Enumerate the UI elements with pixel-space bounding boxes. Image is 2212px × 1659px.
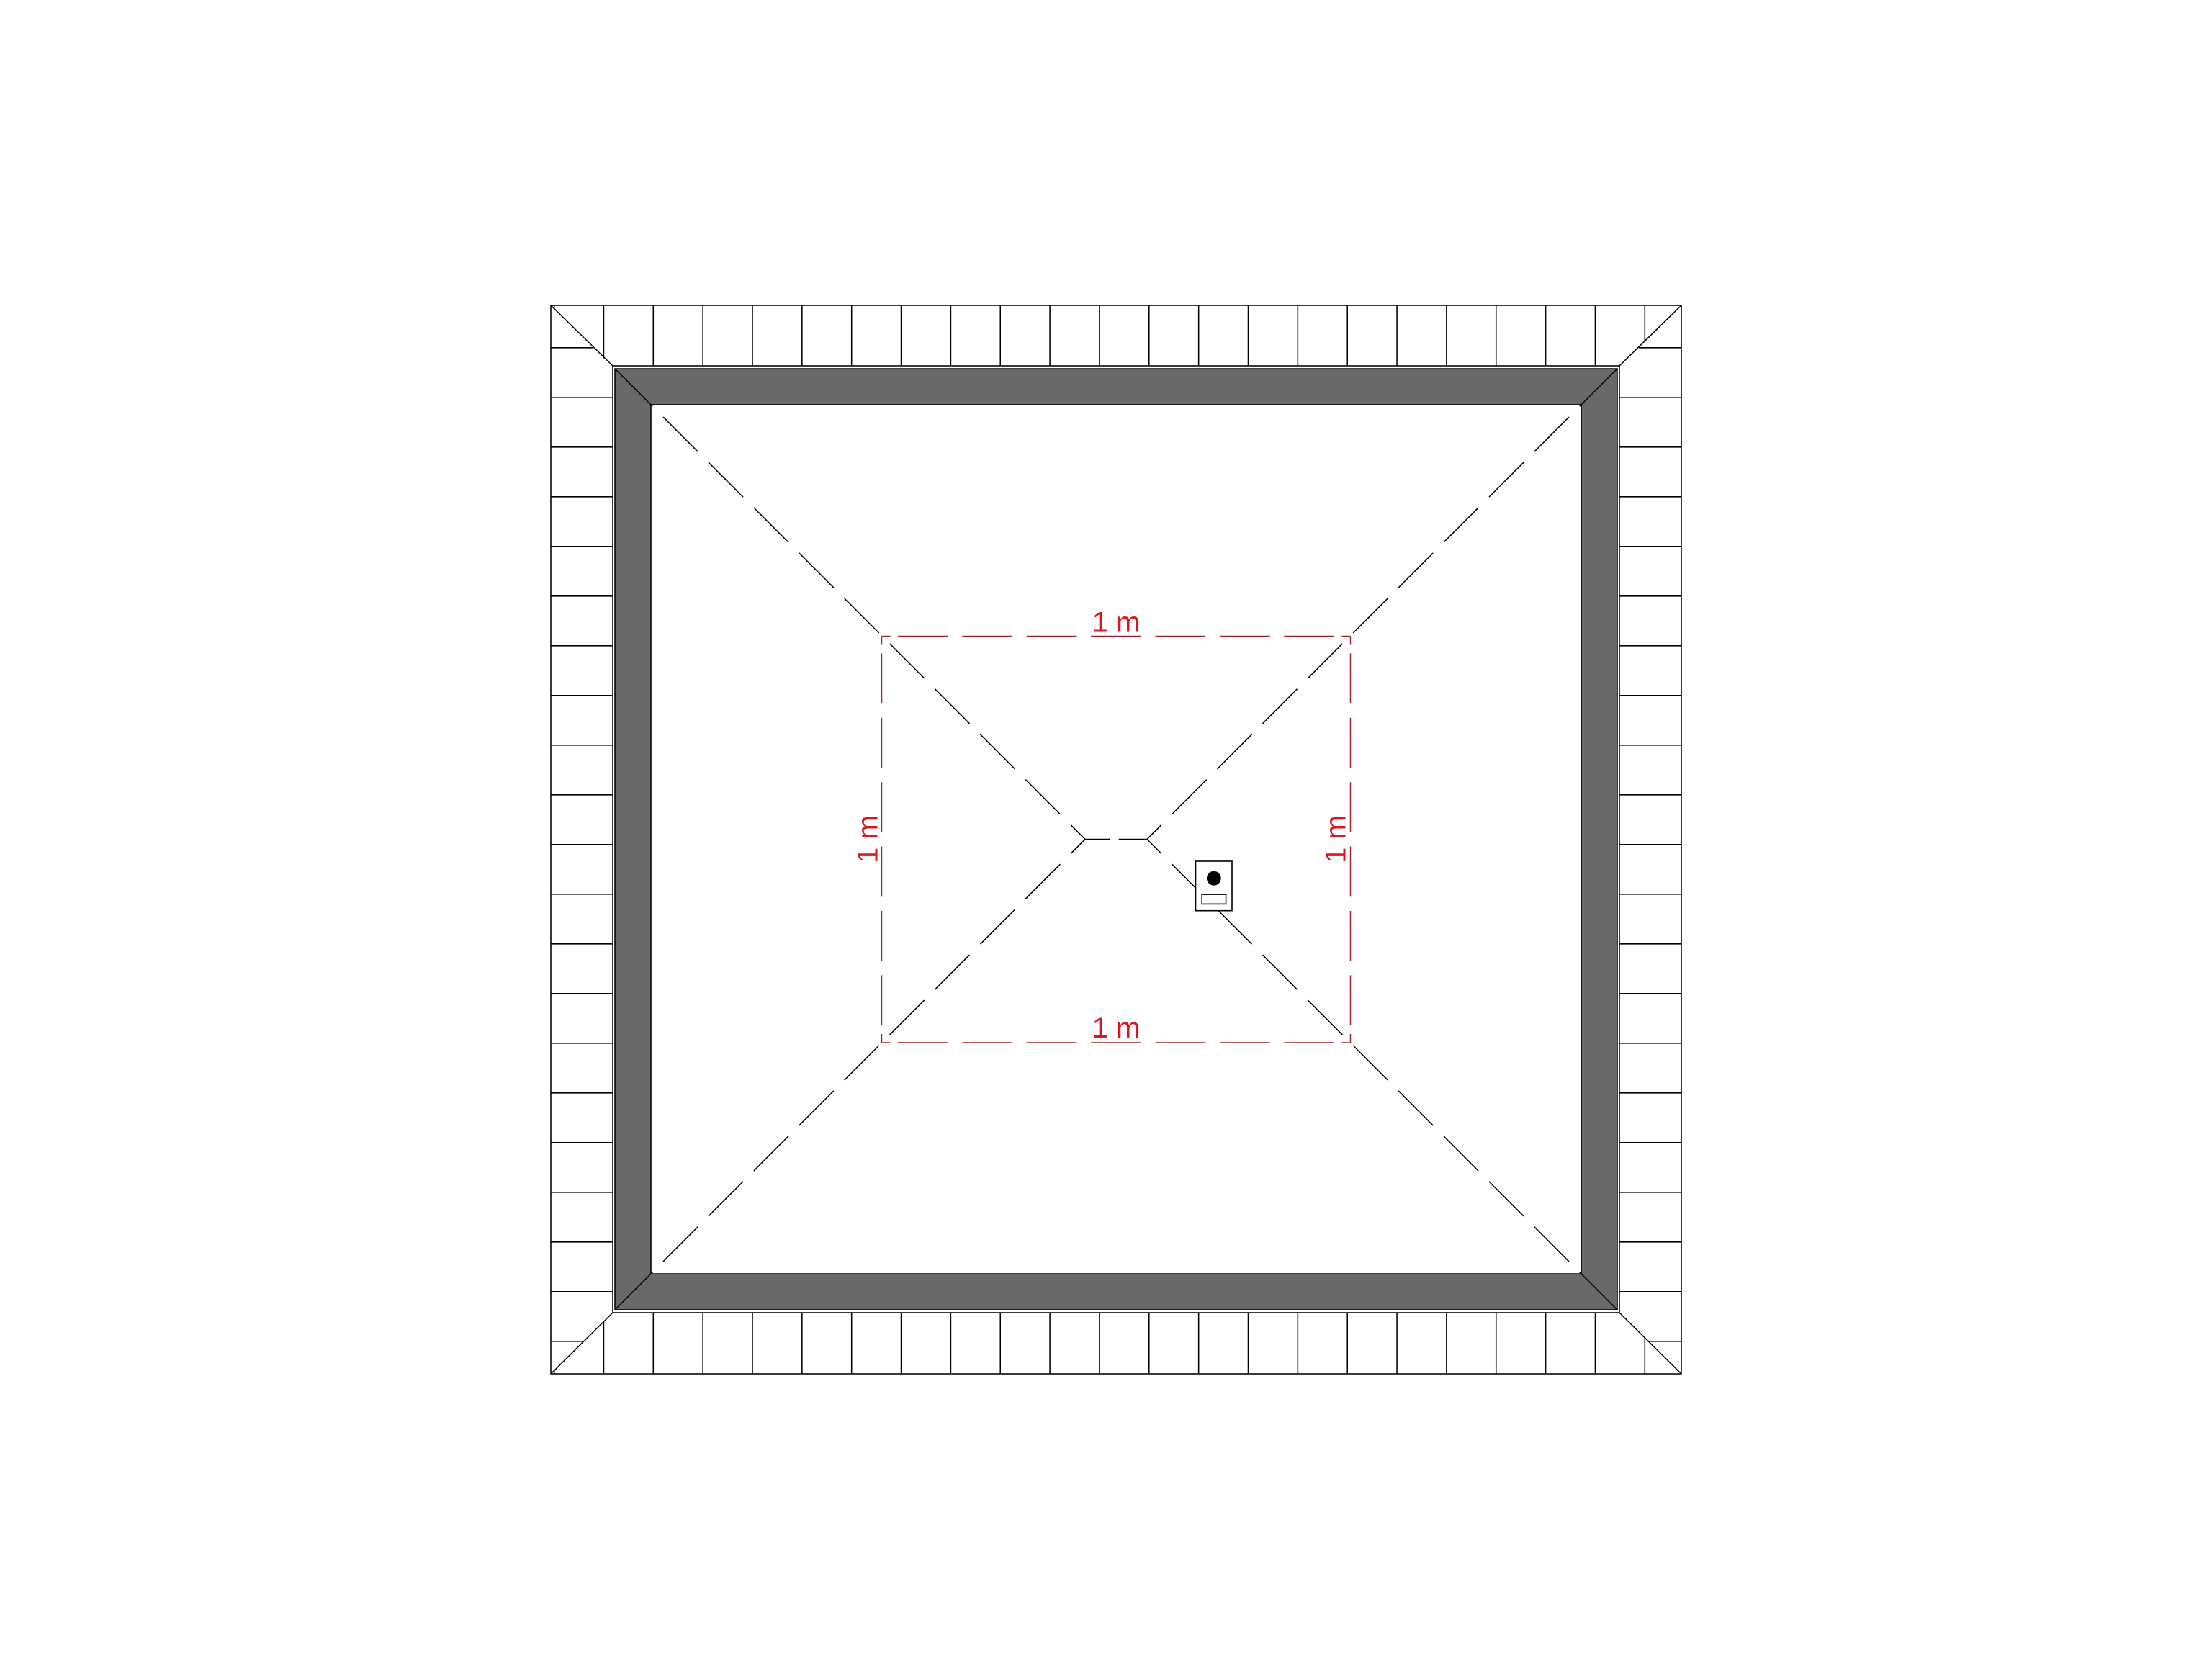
svg-text:1 m: 1 m <box>1092 1012 1141 1044</box>
svg-text:1 m: 1 m <box>1321 815 1352 863</box>
svg-text:1 m: 1 m <box>853 815 884 863</box>
svg-text:1 m: 1 m <box>1092 607 1141 639</box>
